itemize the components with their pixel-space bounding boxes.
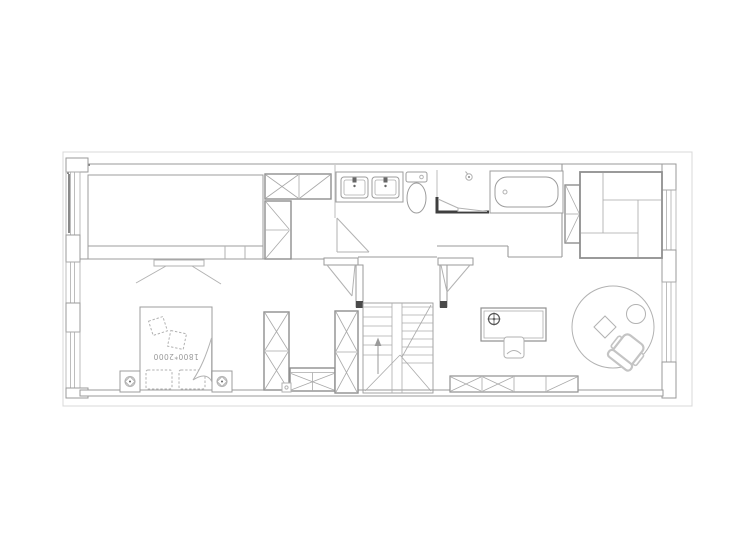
shower-door [458, 208, 487, 212]
faucet-icon [353, 178, 357, 183]
window-left-3 [66, 332, 80, 388]
closet-room [88, 174, 331, 259]
window-left-2 [66, 262, 80, 303]
study [450, 286, 654, 392]
wardrobes [264, 311, 358, 393]
nook-cabinet [565, 185, 580, 243]
desk-chair [504, 337, 524, 358]
shower-head-icon [466, 172, 473, 181]
window-right-1 [662, 190, 676, 250]
corner-connector [282, 383, 291, 392]
nightstand-left [120, 371, 140, 392]
study-low-cabinet [450, 376, 578, 392]
closet-cabinet-tall [265, 201, 291, 259]
wardrobe-tall-right [335, 311, 358, 393]
vanity-double-sink [336, 172, 403, 202]
office-chair [605, 330, 649, 373]
nightstand-right [212, 371, 232, 392]
shower [437, 170, 489, 212]
up-arrow-icon [375, 338, 382, 375]
closet-cabinet-top [265, 174, 331, 199]
staircase [363, 303, 433, 393]
closet-counter [88, 246, 263, 259]
tv [136, 260, 221, 284]
wardrobe-tall-left [264, 312, 289, 390]
stool [627, 305, 646, 324]
toilet [406, 172, 427, 213]
closet-platform [88, 175, 263, 246]
double-bed: 1800*2000 [140, 307, 212, 390]
wall-block [66, 303, 80, 332]
window-left-1 [66, 172, 80, 235]
daybed-nook [565, 172, 662, 258]
wall-block [66, 158, 88, 172]
floor-plan-screenshot: 1800*2000 [0, 0, 740, 550]
wall-block [662, 362, 676, 398]
hall-door-left [324, 258, 358, 296]
wall-block [66, 235, 80, 262]
wall-block [662, 250, 676, 282]
wardrobe-low [290, 368, 335, 391]
window-right-2 [662, 282, 676, 362]
bed-size-label: 1800*2000 [153, 352, 199, 361]
faucet-icon [384, 178, 388, 183]
bathtub [490, 171, 563, 213]
floor-cushion [594, 316, 616, 338]
bedroom: 1800*2000 [120, 260, 232, 392]
bathroom-door [337, 218, 369, 252]
desk [481, 308, 546, 341]
stair-treads-right [402, 307, 433, 363]
floor-plan-canvas: 1800*2000 [0, 0, 740, 550]
wall-block [662, 164, 676, 190]
sectional-daybed [580, 172, 662, 258]
bathroom [336, 170, 563, 213]
